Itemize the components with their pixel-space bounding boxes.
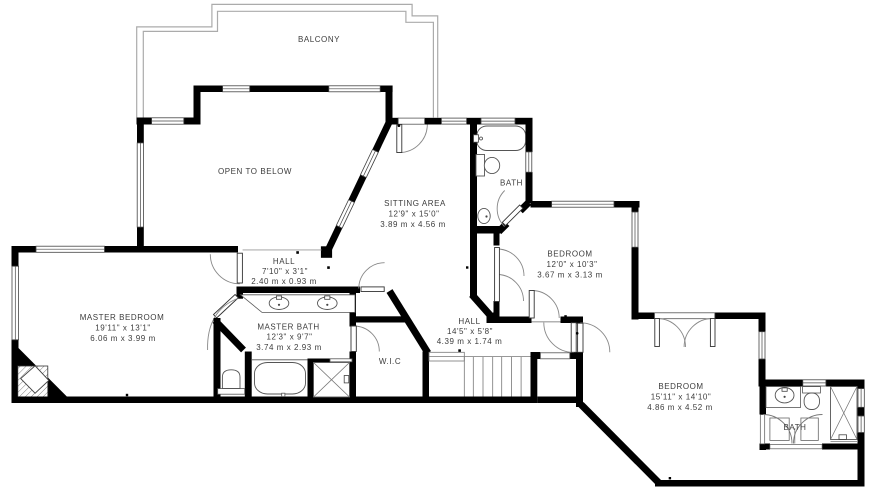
svg-text:4.86 m x 4.52 m: 4.86 m x 4.52 m: [647, 403, 713, 412]
svg-text:HALL: HALL: [273, 257, 295, 266]
svg-text:BEDROOM: BEDROOM: [547, 250, 592, 259]
svg-text:BATH: BATH: [784, 423, 807, 432]
svg-text:BEDROOM: BEDROOM: [658, 382, 703, 391]
svg-text:3.89 m x 4.56 m: 3.89 m x 4.56 m: [380, 220, 446, 229]
svg-text:12'3" x 9'7": 12'3" x 9'7": [266, 333, 312, 342]
svg-text:MASTER BEDROOM: MASTER BEDROOM: [80, 313, 165, 322]
svg-text:6.06 m x 3.99 m: 6.06 m x 3.99 m: [90, 334, 156, 343]
svg-text:MASTER BATH: MASTER BATH: [257, 323, 319, 332]
svg-text:7'10" x 3'1": 7'10" x 3'1": [262, 267, 308, 276]
svg-text:19'11" x 13'1": 19'11" x 13'1": [95, 324, 150, 333]
svg-text:2.40 m x 0.93 m: 2.40 m x 0.93 m: [251, 277, 317, 286]
svg-text:SITTING AREA: SITTING AREA: [384, 199, 446, 208]
svg-text:W.I.C: W.I.C: [379, 357, 401, 366]
svg-text:HALL: HALL: [458, 317, 480, 326]
svg-text:12'0" x 10'3": 12'0" x 10'3": [546, 260, 597, 269]
svg-text:4.39 m x 1.74 m: 4.39 m x 1.74 m: [437, 337, 503, 346]
svg-text:BATH: BATH: [500, 178, 523, 187]
svg-text:3.67 m x 3.13 m: 3.67 m x 3.13 m: [537, 271, 603, 280]
svg-text:BALCONY: BALCONY: [298, 35, 340, 44]
svg-text:15'11" x 14'10": 15'11" x 14'10": [651, 393, 711, 402]
svg-text:12'9" x 15'0": 12'9" x 15'0": [388, 210, 439, 219]
svg-text:14'5" x 5'8": 14'5" x 5'8": [447, 327, 493, 336]
svg-text:OPEN TO BELOW: OPEN TO BELOW: [218, 167, 292, 176]
svg-text:3.74 m x 2.93 m: 3.74 m x 2.93 m: [256, 343, 322, 352]
